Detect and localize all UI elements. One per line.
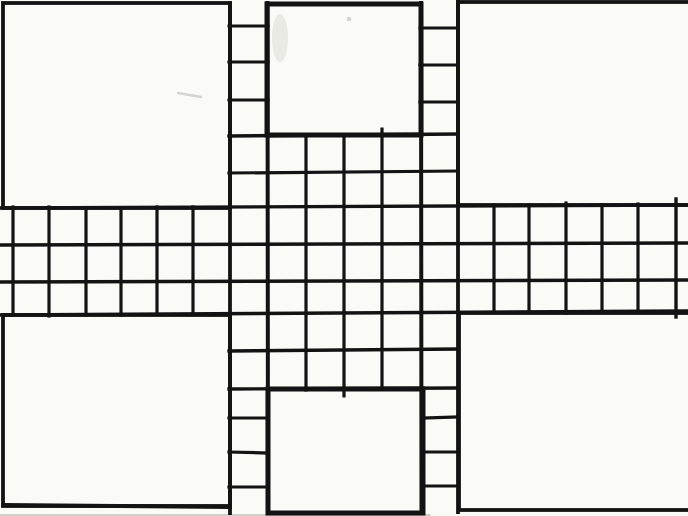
scanned-game-board [0, 0, 688, 516]
center-col-line-421 [421, 3, 422, 513]
bottom-right-strip-divider-1 [422, 417, 458, 418]
pencil-scribble-top-home-box [272, 14, 288, 62]
bottom-left-panel-bottom-line [3, 505, 230, 507]
bottom-left-strip-divider-2 [229, 452, 268, 453]
center-col-line-268 [268, 3, 269, 513]
board-svg [0, 0, 688, 516]
pencil-dot-top-home-box [347, 17, 351, 21]
